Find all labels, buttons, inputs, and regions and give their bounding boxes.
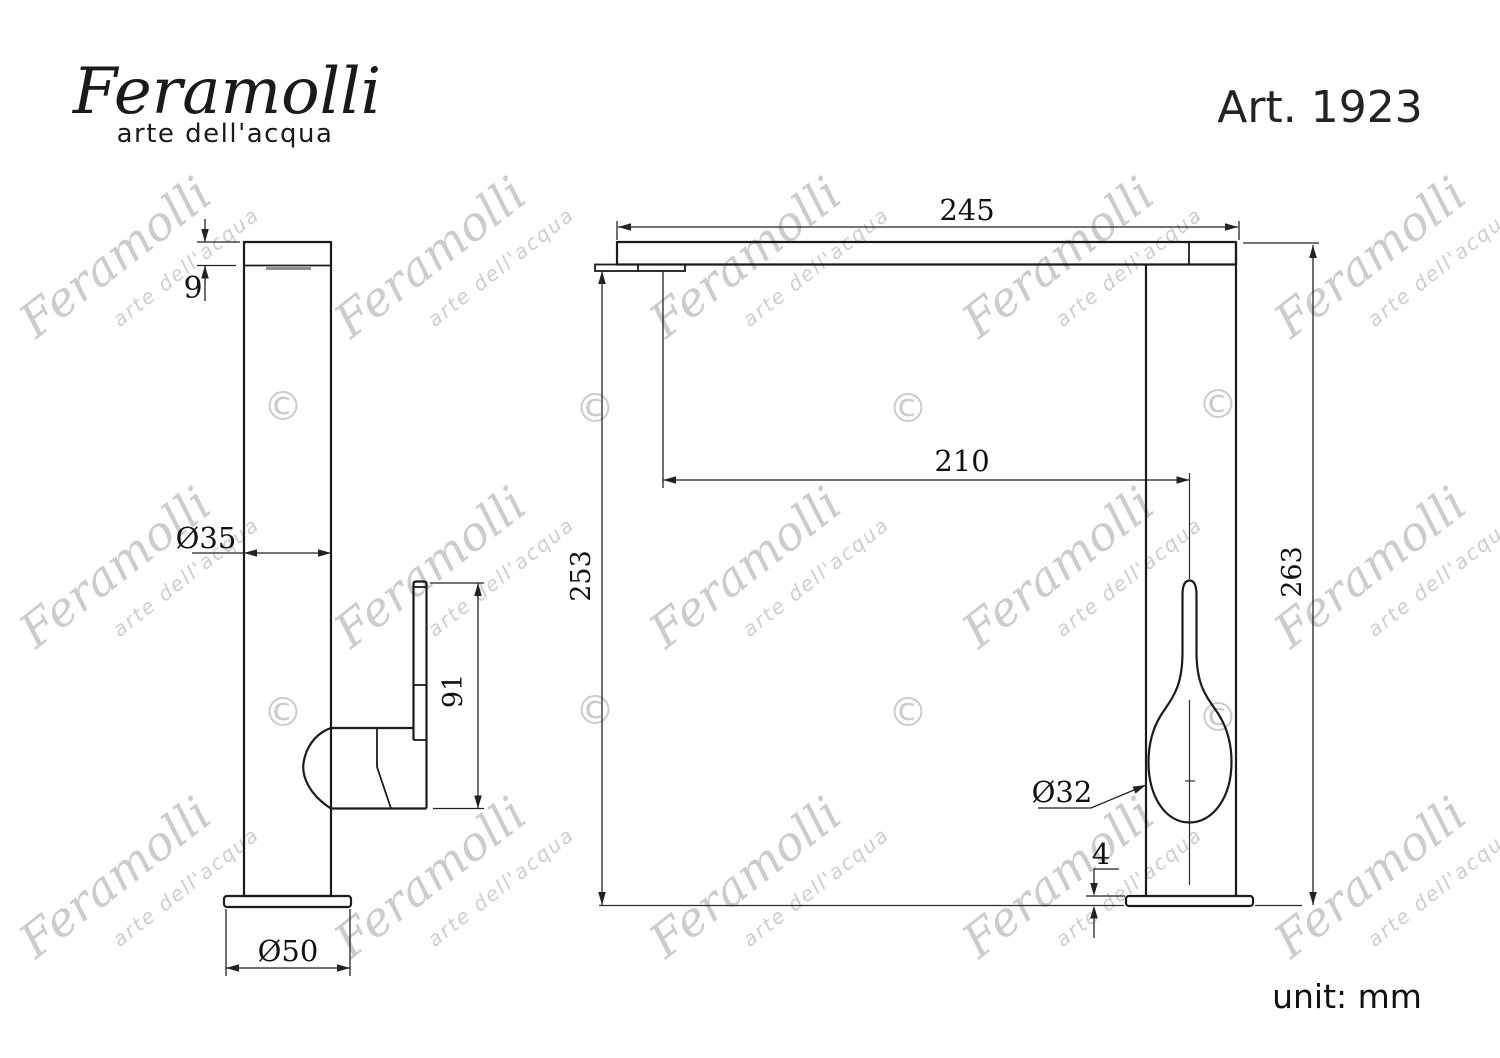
dim-label-base-diameter: Ø50 xyxy=(258,934,319,968)
dim-label-spout-length: 245 xyxy=(939,193,994,227)
dim-label-handle-diameter: Ø32 xyxy=(1032,775,1093,809)
dim-underside-height: 253 xyxy=(566,271,606,905)
side-mixer-body xyxy=(303,728,426,809)
brand-logo: Feramolli arte dell'acqua xyxy=(72,55,381,149)
dim-total-height: 263 xyxy=(1243,243,1319,905)
unit-note: unit: mm xyxy=(1272,977,1422,1016)
dim-label-column-diameter: Ø35 xyxy=(176,521,237,555)
dim-label-handle-height: 91 xyxy=(438,674,469,708)
dim-label-total-height: 263 xyxy=(1277,546,1308,598)
dim-spout-reach: 210 xyxy=(663,271,1190,488)
dim-label-spout-reach: 210 xyxy=(934,444,989,478)
drawing-sheet: Feramolli arte dell'acqua © Feramolli ar… xyxy=(0,0,1500,1058)
front-base-flange xyxy=(1126,896,1253,906)
brand-tagline: arte dell'acqua xyxy=(117,119,334,149)
side-base-flange xyxy=(224,896,351,907)
brand-logo-text: Feramolli xyxy=(72,55,381,129)
dim-label-base-thickness: 4 xyxy=(1092,837,1110,871)
article-number: Art. 1923 xyxy=(1217,82,1422,133)
dim-label-underside-height: 253 xyxy=(566,550,597,602)
side-handle xyxy=(414,582,427,809)
dim-label-spout-thickness: 9 xyxy=(183,271,202,306)
